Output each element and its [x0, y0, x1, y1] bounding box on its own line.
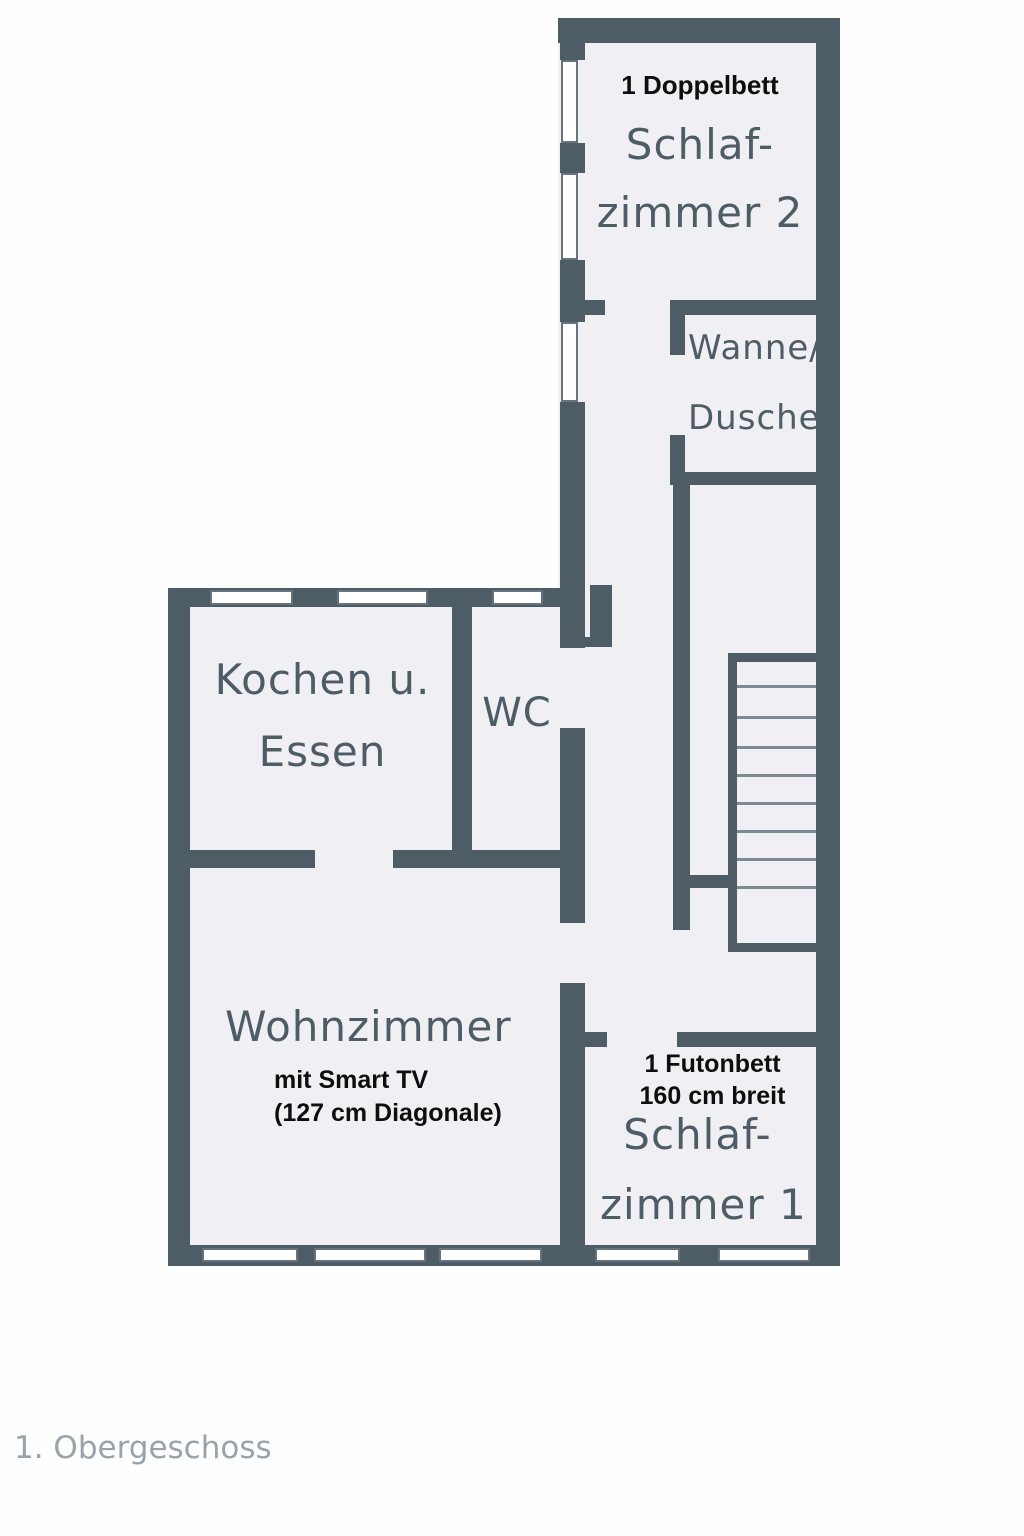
wall-segment [590, 585, 612, 647]
stair-step-line [737, 802, 816, 805]
window [718, 1248, 810, 1262]
room-label-bad-line1: Wanne/ [688, 328, 816, 368]
window [595, 1248, 680, 1262]
wall-segment [728, 653, 816, 662]
wall-segment [560, 143, 585, 173]
wall-segment [560, 300, 605, 315]
stair-step-line [737, 886, 816, 889]
wall-segment [670, 300, 685, 355]
wall-segment [728, 653, 737, 952]
wall-segment [393, 850, 583, 868]
wall-segment [168, 588, 190, 1266]
wall-segment [583, 637, 592, 647]
window [561, 60, 578, 143]
stair-step-line [737, 830, 816, 833]
window [202, 1248, 298, 1262]
schlafzimmer2-bed-note: 1 Doppelbett [590, 70, 810, 101]
wall-segment [585, 1032, 607, 1047]
window [439, 1248, 542, 1262]
stair-step-line [737, 746, 816, 749]
wall-segment [558, 18, 840, 43]
wall-segment [728, 943, 816, 952]
wall-segment [673, 485, 690, 930]
wohnzimmer-tv-note-line1: mit Smart TV [274, 1066, 428, 1095]
wohnzimmer-tv-note-line2: (127 cm Diagonale) [274, 1099, 502, 1128]
room-label-wc: WC [472, 690, 562, 736]
wall-segment [677, 1032, 816, 1047]
window [561, 322, 578, 402]
room-label-schlafzimmer2-line2: zimmer 2 [590, 188, 810, 237]
wall-segment [670, 300, 816, 315]
window [561, 173, 578, 260]
wall-segment [690, 875, 728, 888]
wall-segment [190, 850, 315, 868]
floor-plan: 1 Doppelbett Schlaf- zimmer 2 Wanne/ Dus… [0, 0, 1024, 1536]
schlafzimmer1-bed-note-line2: 160 cm breit [630, 1082, 795, 1111]
wall-segment [670, 472, 816, 485]
wall-segment [560, 983, 585, 1266]
room-label-schlafzimmer1-line2: zimmer 1 [600, 1180, 795, 1229]
wall-segment [560, 18, 585, 60]
schlafzimmer1-bed-note-line1: 1 Futonbett [630, 1050, 795, 1079]
room-label-kueche-line1: Kochen u. [200, 655, 445, 704]
wall-segment [452, 607, 472, 850]
window [314, 1248, 426, 1262]
room-label-kueche-line2: Essen [200, 727, 445, 776]
room-label-schlafzimmer2-line1: Schlaf- [590, 120, 810, 169]
room-label-schlafzimmer1-line1: Schlaf- [600, 1110, 795, 1159]
wall-segment [560, 402, 585, 648]
wall-segment [816, 18, 840, 1266]
room-label-bad-line2: Dusche [688, 398, 816, 438]
window [337, 590, 428, 605]
window [492, 590, 543, 605]
stair-step-line [737, 716, 816, 719]
room-label-wohnzimmer: Wohnzimmer [225, 1002, 490, 1051]
stair-step-line [737, 858, 816, 861]
window [210, 590, 293, 605]
stair-step-line [737, 774, 816, 777]
stair-step-line [737, 685, 816, 688]
wall-segment [560, 728, 585, 923]
floor-label: 1. Obergeschoss [14, 1430, 272, 1466]
